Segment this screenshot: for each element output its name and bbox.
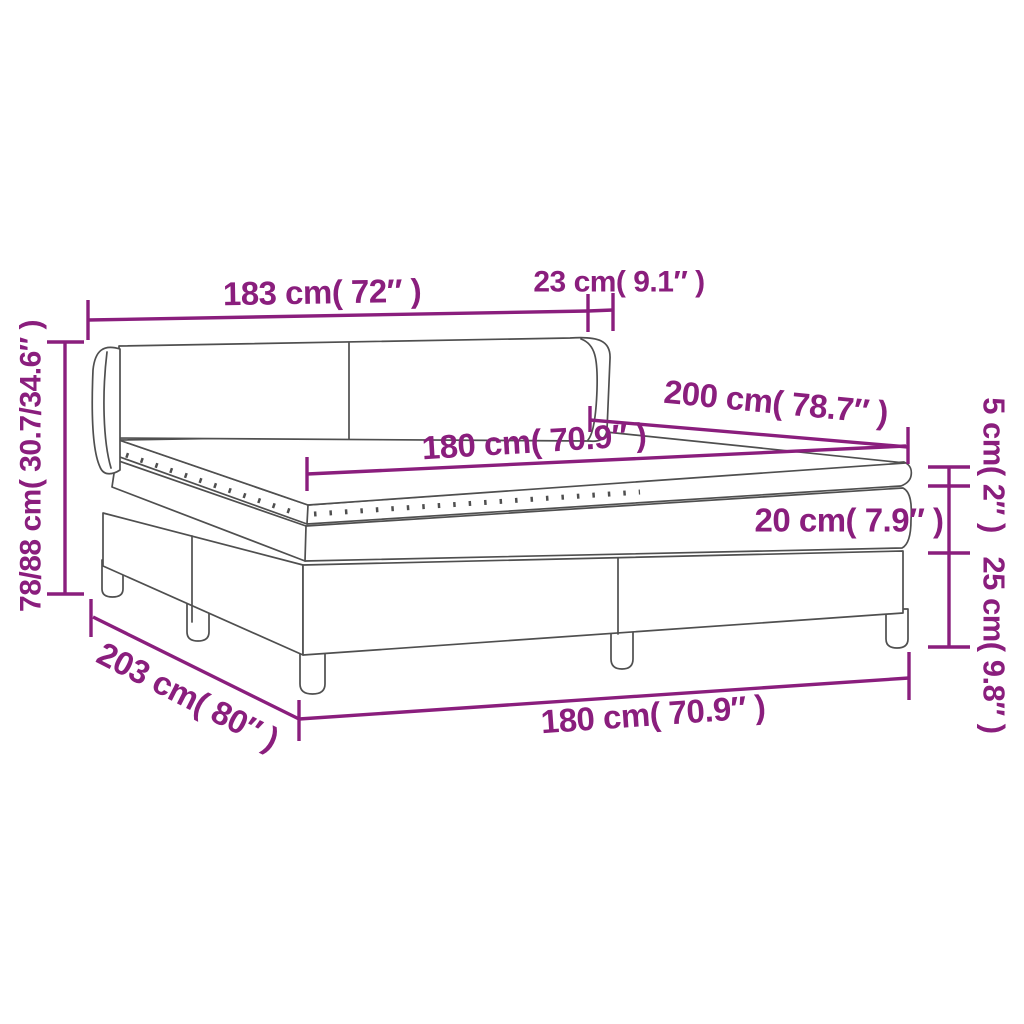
dim-label-bed-length: 200 cm( 78.7″ ) bbox=[662, 373, 889, 431]
dim-label-topper-height: 5 cm( 2″ ) bbox=[977, 397, 1012, 533]
dim-label-mattress-height: 20 cm( 7.9″ ) bbox=[754, 502, 943, 539]
dim-total-height: 78/88 cm( 30.7/34.6″ ) bbox=[15, 320, 85, 612]
dim-label-base-width: 180 cm( 70.9″ ) bbox=[540, 688, 767, 741]
dim-label-headboard-depth: 23 cm( 9.1″ ) bbox=[533, 266, 704, 299]
dimension-diagram-image: 183 cm( 72″ ) 23 cm( 9.1″ ) 78/88 cm( 30… bbox=[0, 0, 1024, 1024]
dim-label-base-height: 25 cm( 9.8″ ) bbox=[977, 556, 1012, 733]
dim-label-total-height: 78/88 cm( 30.7/34.6″ ) bbox=[15, 320, 48, 612]
dim-headboard-width: 183 cm( 72″ ) bbox=[88, 272, 588, 340]
bed-dimension-diagram: 183 cm( 72″ ) 23 cm( 9.1″ ) 78/88 cm( 30… bbox=[0, 0, 1024, 1024]
dim-base-width: 180 cm( 70.9″ ) bbox=[299, 652, 909, 740]
bed-leg bbox=[886, 609, 908, 648]
dim-headboard-depth: 23 cm( 9.1″ ) bbox=[533, 266, 704, 332]
dim-label-headboard-width: 183 cm( 72″ ) bbox=[223, 272, 422, 312]
topper-corner-crease bbox=[307, 505, 308, 524]
base-front-face bbox=[303, 551, 903, 655]
mattress-corner-crease bbox=[305, 526, 306, 561]
